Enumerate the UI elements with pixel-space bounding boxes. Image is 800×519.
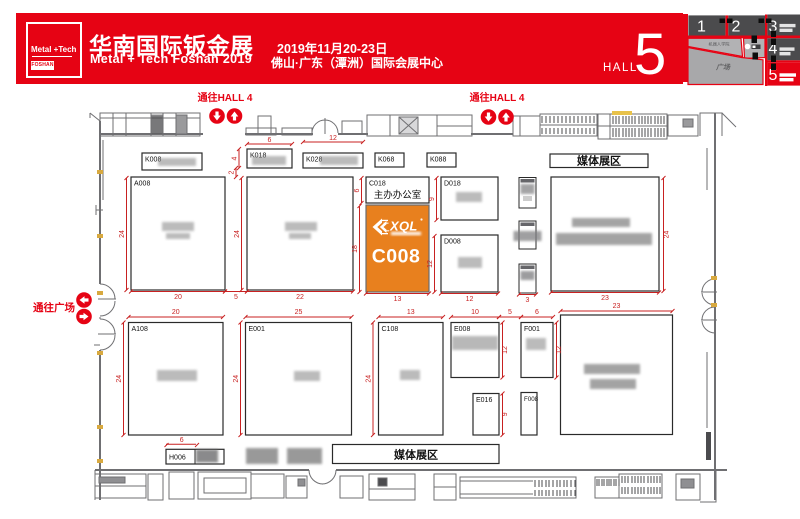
svg-text:5: 5 (234, 294, 238, 301)
svg-text:22: 22 (296, 294, 304, 301)
svg-text:20: 20 (172, 309, 180, 316)
svg-text:F008: F008 (524, 396, 539, 403)
svg-text:6: 6 (268, 137, 272, 144)
svg-text:C108: C108 (382, 326, 399, 333)
svg-text:24: 24 (234, 230, 241, 238)
svg-text:10: 10 (471, 309, 479, 316)
svg-text:C018: C018 (369, 181, 386, 188)
svg-text:20: 20 (174, 294, 182, 301)
svg-text:D008: D008 (444, 239, 461, 246)
svg-text:6: 6 (354, 188, 361, 192)
svg-text:23: 23 (601, 295, 609, 302)
svg-text:12: 12 (556, 346, 563, 354)
svg-text:13: 13 (394, 296, 402, 303)
svg-text:通往HALL 4: 通往HALL 4 (198, 91, 253, 104)
svg-text:12: 12 (329, 135, 337, 142)
svg-text:E001: E001 (249, 326, 265, 333)
svg-text:24: 24 (119, 230, 126, 238)
svg-text:5: 5 (508, 309, 512, 316)
svg-text:K028: K028 (306, 157, 322, 164)
svg-text:E016: E016 (476, 397, 492, 404)
svg-text:A008: A008 (134, 181, 150, 188)
svg-text:XQL: XQL (389, 219, 418, 234)
svg-text:6: 6 (180, 437, 184, 444)
svg-text:12: 12 (466, 296, 474, 303)
svg-text:H006: H006 (169, 455, 186, 462)
svg-text:D018: D018 (444, 181, 461, 188)
svg-text:9: 9 (429, 197, 436, 201)
svg-text:13: 13 (407, 309, 415, 316)
svg-text:通往广场: 通往广场 (33, 301, 75, 314)
svg-text:C008: C008 (372, 246, 421, 268)
svg-text:12: 12 (427, 260, 434, 268)
svg-text:通往HALL 4: 通往HALL 4 (470, 91, 525, 104)
svg-text:18: 18 (352, 245, 359, 253)
svg-text:24: 24 (233, 375, 240, 383)
svg-text:3: 3 (526, 297, 530, 304)
svg-text:4: 4 (232, 156, 239, 160)
svg-text:E008: E008 (454, 326, 470, 333)
svg-text:2: 2 (229, 170, 236, 174)
svg-text:24: 24 (664, 231, 671, 239)
svg-text:6: 6 (535, 309, 539, 316)
svg-text:9: 9 (502, 412, 509, 416)
svg-text:媒体展区: 媒体展区 (393, 448, 438, 462)
svg-text:主办办公室: 主办办公室 (374, 189, 422, 201)
svg-text:23: 23 (613, 303, 621, 310)
svg-text:K088: K088 (430, 157, 446, 164)
svg-text:25: 25 (295, 309, 303, 316)
svg-text:F001: F001 (524, 326, 540, 333)
svg-text:12: 12 (502, 346, 509, 354)
svg-text:A108: A108 (132, 326, 148, 333)
svg-text:24: 24 (366, 375, 373, 383)
svg-text:媒体展区: 媒体展区 (576, 154, 621, 168)
svg-text:K068: K068 (378, 157, 394, 164)
svg-text:24: 24 (116, 375, 123, 383)
